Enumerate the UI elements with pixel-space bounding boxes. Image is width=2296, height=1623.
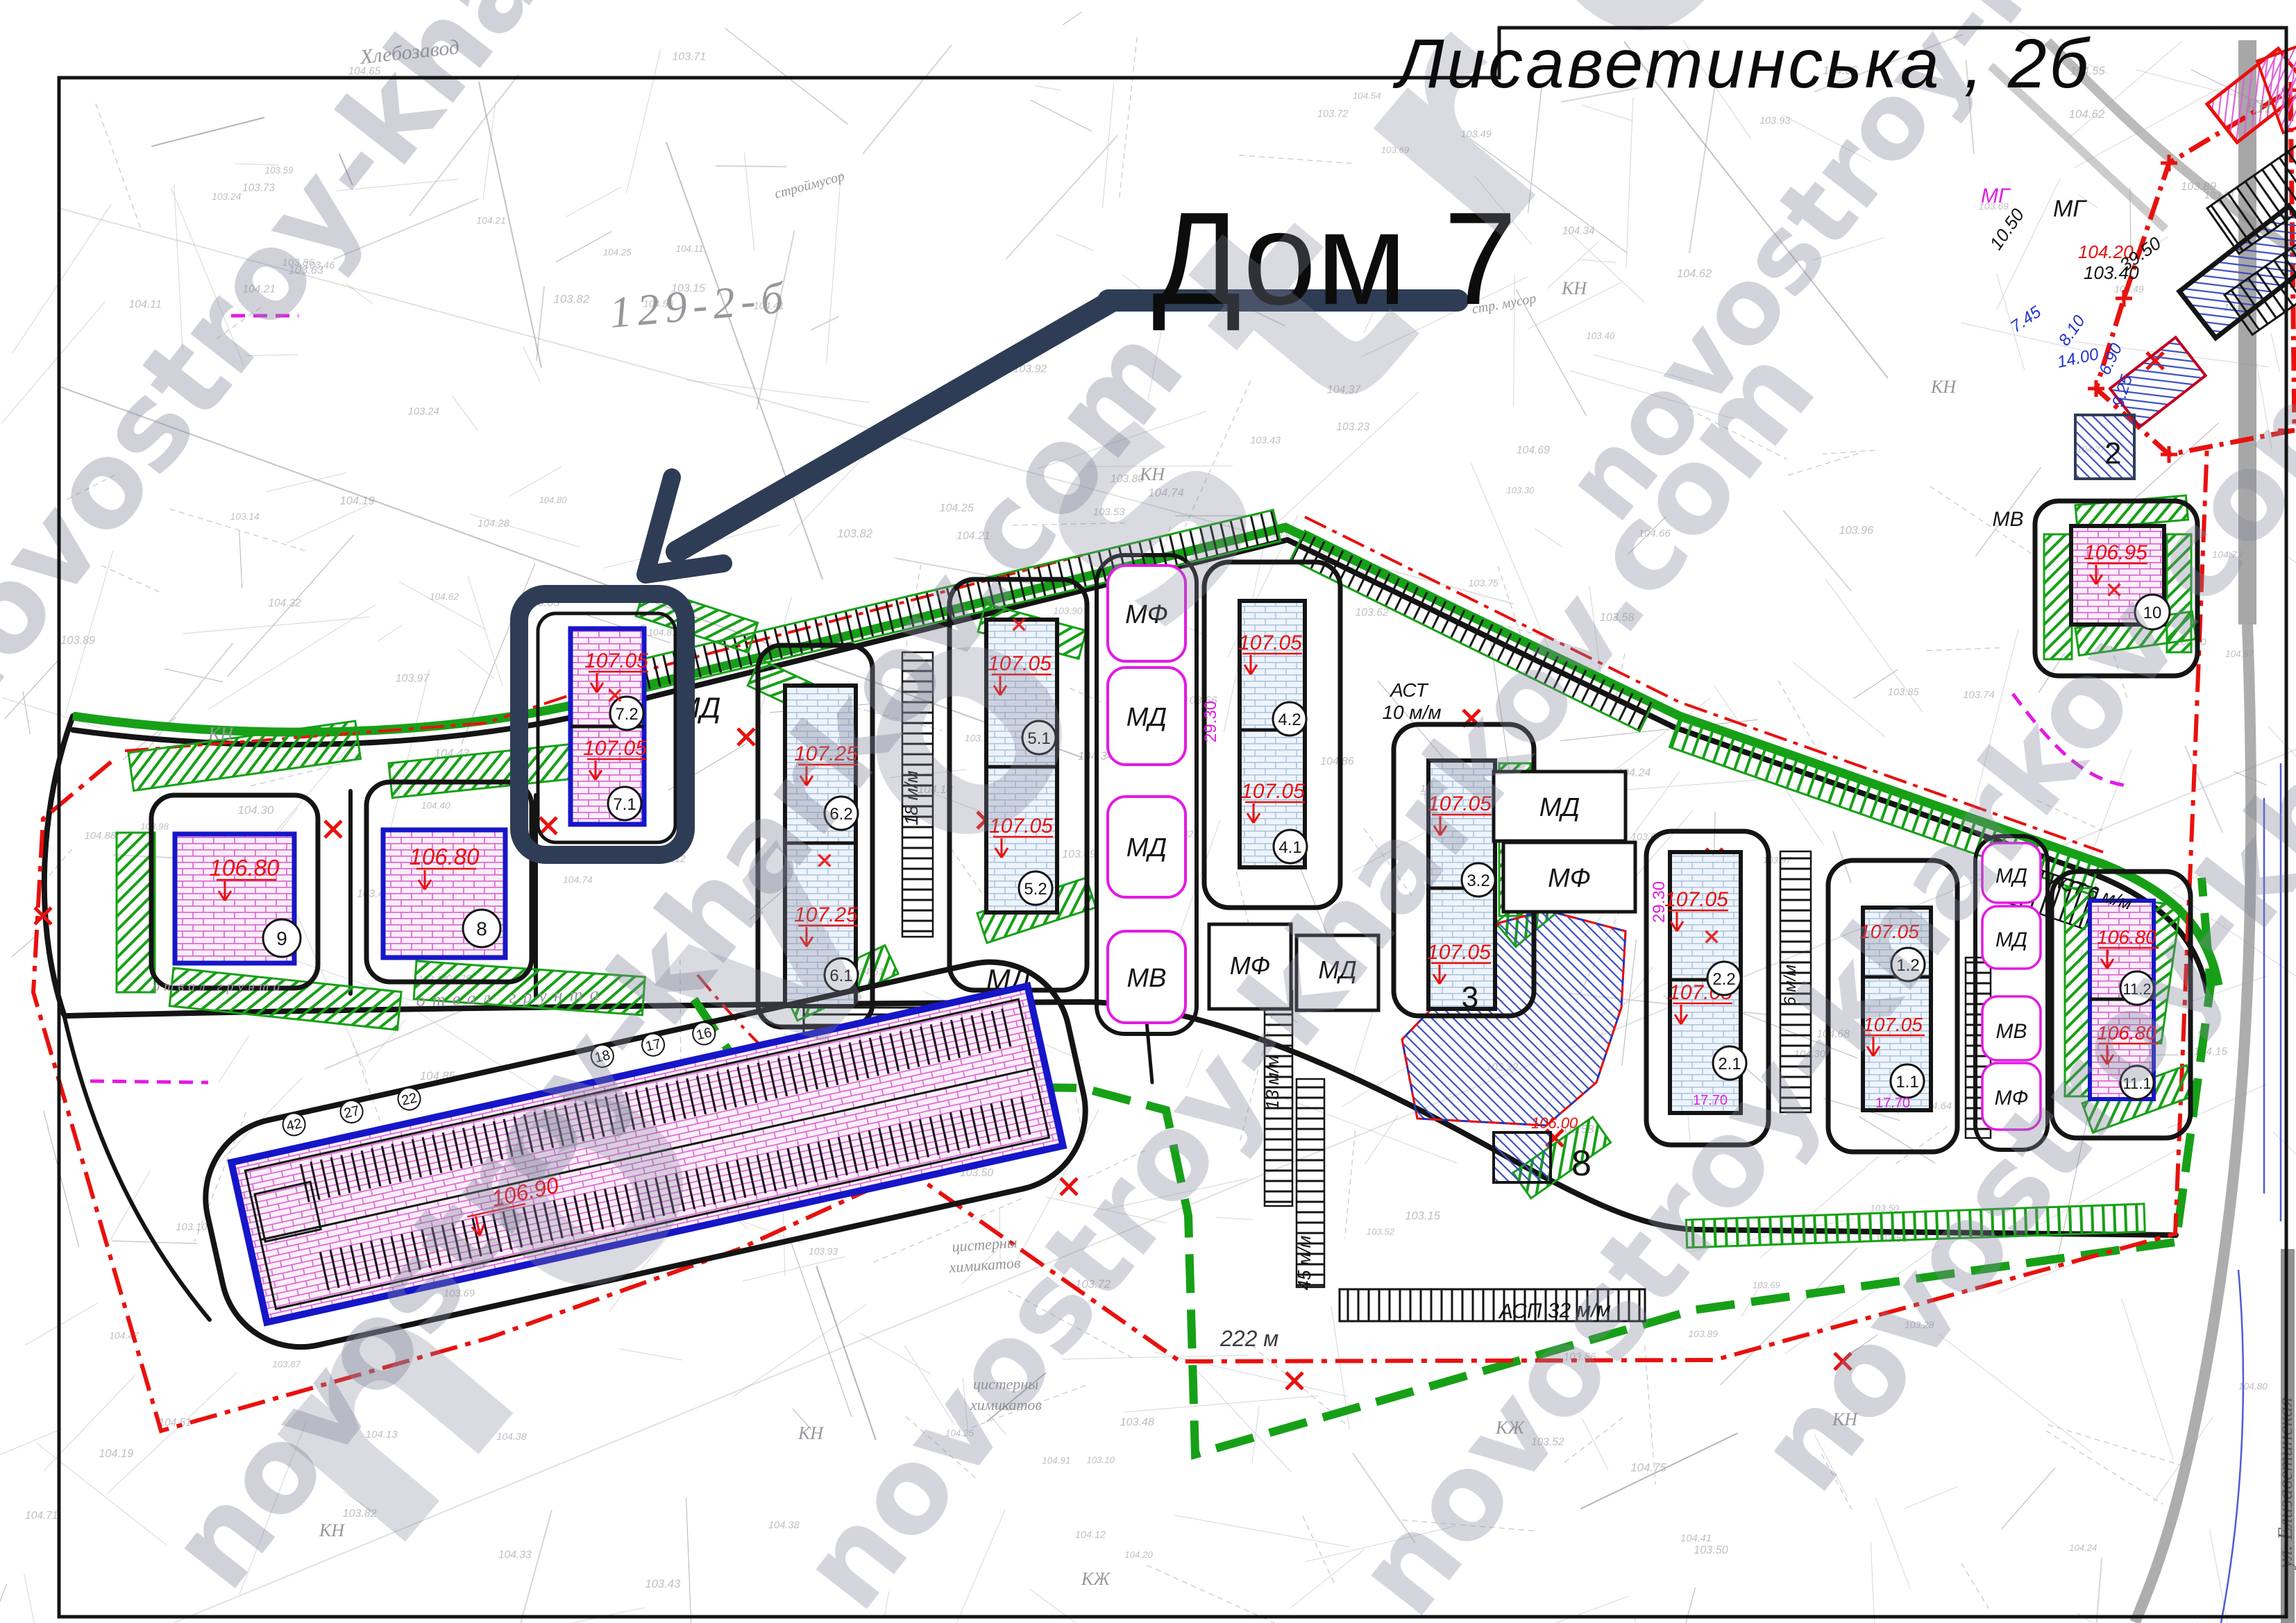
survey-noise bbox=[337, 179, 458, 191]
survey-noise bbox=[164, 669, 223, 682]
dom7-label: Дом 7 bbox=[1152, 185, 1517, 332]
survey-noise: 103.96 bbox=[1839, 525, 1873, 537]
survey-noise: 103.32 bbox=[1165, 829, 1194, 839]
survey-noise: 103.93 bbox=[1759, 115, 1791, 126]
survey-noise: 104.81 bbox=[648, 627, 677, 638]
elevation-label: 107.05 bbox=[1241, 780, 1305, 803]
survey-noise: 103.87 bbox=[272, 1359, 301, 1370]
survey-noise bbox=[1240, 932, 1278, 981]
survey-noise bbox=[1634, 1617, 1662, 1623]
survey-noise bbox=[2002, 1468, 2055, 1529]
survey-noise bbox=[1591, 778, 1783, 792]
survey-noise: 103.83 bbox=[525, 596, 559, 609]
survey-noise: 104.41 bbox=[1680, 1533, 1712, 1545]
survey-noise bbox=[686, 380, 870, 402]
survey-noise: 104.62 bbox=[1677, 267, 1712, 280]
survey-noise bbox=[537, 287, 544, 361]
survey-noise bbox=[2174, 873, 2203, 889]
survey-noise bbox=[1778, 681, 1830, 772]
service-label: МФ bbox=[1548, 864, 1591, 893]
garage-elevation: 106.90 bbox=[489, 1172, 562, 1211]
survey-noise bbox=[1593, 355, 1694, 382]
survey-noise: 104.27 bbox=[2077, 444, 2105, 454]
survey-noise bbox=[171, 187, 244, 366]
magenta-lines bbox=[90, 316, 2125, 1082]
section-number: 3.2 bbox=[1467, 872, 1489, 890]
survey-noise bbox=[2041, 1142, 2191, 1224]
survey-noise bbox=[1087, 1150, 1145, 1178]
label-cisterny: цистерны bbox=[952, 1233, 1018, 1255]
service-label: МД bbox=[1539, 793, 1580, 822]
survey-noise bbox=[1895, 1126, 1947, 1164]
survey-noise bbox=[1364, 298, 1381, 333]
survey-noise: 104.43 bbox=[434, 747, 469, 760]
survey-noise: 103.14 bbox=[418, 974, 447, 985]
survey-noise: 103.86 bbox=[1564, 1351, 1596, 1363]
survey-noise bbox=[652, 1138, 748, 1229]
survey-noise: 104.86 bbox=[1320, 756, 1354, 767]
survey-noise bbox=[1689, 81, 1716, 253]
survey-noise bbox=[428, 879, 481, 891]
survey-noise bbox=[1361, 277, 1528, 357]
survey-noise bbox=[1124, 1396, 1318, 1413]
survey-noise bbox=[101, 566, 162, 593]
survey-noise: 103.72 bbox=[1317, 109, 1349, 120]
survey-noise bbox=[1628, 516, 1666, 554]
service-label: МД bbox=[676, 691, 721, 724]
survey-noise: 103.14 bbox=[230, 511, 260, 522]
survey-noise bbox=[668, 743, 748, 790]
survey-noise bbox=[249, 759, 360, 786]
survey-noise: 104.61 bbox=[852, 966, 884, 978]
survey-noise bbox=[1187, 1049, 1203, 1089]
survey-noise bbox=[1070, 688, 1163, 729]
grid-bubble: 18 bbox=[593, 1048, 611, 1066]
section-number: 4.2 bbox=[1278, 711, 1301, 729]
survey-noise bbox=[733, 1304, 867, 1397]
survey-noise: 104.47 bbox=[109, 1330, 140, 1341]
survey-noise bbox=[716, 166, 787, 167]
label-p13: 13 м/м bbox=[1262, 1055, 1283, 1110]
survey-noise bbox=[1126, 600, 1207, 636]
survey-noise bbox=[123, 717, 176, 760]
survey-noise bbox=[1489, 634, 1517, 826]
section-number: 8 bbox=[476, 918, 487, 940]
survey-noise bbox=[287, 505, 368, 543]
survey-noise bbox=[1681, 1023, 1690, 1141]
survey-noise bbox=[1252, 1405, 1259, 1463]
survey-noise bbox=[507, 1608, 645, 1623]
survey-noise: 104.59 bbox=[1896, 1098, 1927, 1110]
site-plan-sheet: 103.89104.23103.74104.41103.50103.89104.… bbox=[0, 0, 2296, 1623]
survey-noise: 103.24 bbox=[212, 192, 241, 202]
survey-noise: 104.21 bbox=[476, 215, 505, 226]
survey-noise: 103.25 bbox=[275, 1193, 308, 1205]
survey-noise: 103.50 bbox=[1870, 1203, 1899, 1214]
survey-noise: 103.82 bbox=[837, 527, 872, 540]
survey-noise bbox=[1876, 1497, 1911, 1588]
survey-noise: 103.31 bbox=[2204, 190, 2235, 201]
survey-noise: 103.53 bbox=[1093, 507, 1125, 518]
survey-noise: 104.68 bbox=[1816, 1028, 1850, 1040]
survey-noise bbox=[1714, 686, 1824, 845]
survey-noise: 103.85 bbox=[1888, 687, 1920, 698]
label-p45: 45 м/м bbox=[1294, 1235, 1315, 1290]
survey-noise bbox=[1236, 872, 1258, 965]
survey-noise bbox=[1966, 60, 1973, 154]
label-kn: КН bbox=[1832, 1409, 1858, 1429]
survey-noise bbox=[1925, 648, 2000, 651]
survey-noise bbox=[744, 153, 754, 250]
survey-noise bbox=[410, 75, 518, 216]
survey-noise: 104.19 bbox=[2224, 302, 2256, 314]
survey-noise bbox=[938, 1510, 1006, 1623]
survey-noise: 104.20 bbox=[1124, 1549, 1153, 1560]
service-label: МД bbox=[1126, 703, 1167, 732]
survey-noise bbox=[0, 1429, 62, 1501]
survey-noise bbox=[44, 1375, 135, 1470]
survey-noise bbox=[339, 154, 353, 185]
dim-6-90: 6.90 bbox=[2095, 340, 2126, 377]
survey-noise: 103.15 bbox=[1405, 1209, 1441, 1223]
label-ast: АСТ bbox=[1389, 679, 1428, 701]
sheet-frame bbox=[59, 28, 2286, 1617]
survey-noise: 103.50 bbox=[1694, 1544, 1728, 1556]
building-2: 107.05 107.05 2.2 2.1 17.70 29.30 bbox=[1646, 831, 1769, 1145]
building-7: 107.05 107.05 7.2 7.1 bbox=[538, 613, 675, 842]
survey-noise bbox=[1470, 139, 1627, 253]
survey-noise: 104.87 bbox=[1154, 984, 1183, 994]
survey-noise: 103.90 bbox=[1054, 606, 1083, 616]
section-number: 2.1 bbox=[1718, 1055, 1741, 1073]
survey-noise bbox=[2094, 1557, 2102, 1623]
survey-noise bbox=[626, 49, 660, 193]
survey-noise bbox=[2290, 48, 2296, 76]
survey-noise bbox=[1244, 1339, 1345, 1424]
survey-noise bbox=[566, 187, 621, 216]
survey-noise bbox=[884, 1591, 888, 1617]
survey-noise bbox=[1195, 1369, 1291, 1472]
building-5: 107.05 107.05 5.1 5.2 bbox=[949, 579, 1087, 990]
section-number: 3 bbox=[1462, 980, 1478, 1014]
survey-noise bbox=[2273, 1132, 2296, 1272]
survey-noise bbox=[1689, 409, 1787, 459]
survey-noise bbox=[1139, 526, 1170, 634]
garage-grid-bubbles: 42 27 22 18 17 16 bbox=[280, 1020, 717, 1137]
survey-noise bbox=[1570, 371, 1734, 418]
survey-noise bbox=[1626, 97, 1633, 269]
survey-noise bbox=[1433, 607, 1557, 640]
survey-noise: 103.15 bbox=[671, 282, 705, 294]
survey-background-texture: 103.89104.23103.74104.41103.50103.89104.… bbox=[0, 12, 2296, 1623]
survey-noise: 103.30 bbox=[1506, 485, 1535, 495]
survey-noise: 103.43 bbox=[645, 1577, 680, 1590]
survey-noise bbox=[1938, 1334, 2092, 1453]
survey-noise: 104.25 bbox=[940, 502, 974, 514]
survey-noise: 104.12 bbox=[1075, 1529, 1106, 1540]
survey-noise bbox=[1076, 1098, 1084, 1145]
survey-noise bbox=[1402, 1520, 1536, 1531]
watermark-layer: novostroy-kharkov.com novostroy-kharkov.… bbox=[0, 0, 2296, 1623]
survey-noise bbox=[1046, 1197, 1166, 1223]
dim-9-25: 9.25 bbox=[2109, 372, 2136, 409]
survey-noise bbox=[1998, 1243, 2127, 1293]
label-ast-count: 10 м/м bbox=[1382, 702, 1441, 723]
survey-noise bbox=[108, 1171, 150, 1243]
survey-noise: 104.34 bbox=[1562, 225, 1595, 237]
survey-noise: 104.74 bbox=[1148, 486, 1184, 499]
survey-noise bbox=[2210, 1529, 2236, 1623]
survey-noise bbox=[1148, 251, 1176, 400]
survey-noise: 104.37 bbox=[1327, 384, 1362, 396]
survey-noise bbox=[1689, 1218, 1855, 1252]
watermark-text: novostroy-kharkov.com bbox=[1330, 329, 2296, 1623]
survey-noise bbox=[1579, 260, 1616, 262]
survey-noise bbox=[399, 581, 486, 629]
label-kn: КН bbox=[1139, 464, 1165, 484]
survey-noise bbox=[26, 1303, 99, 1345]
survey-noise bbox=[1122, 274, 1167, 309]
survey-noise bbox=[2075, 341, 2268, 366]
survey-noise: 103.52 bbox=[1531, 1436, 1564, 1448]
survey-noise: 103.82 bbox=[343, 1508, 377, 1520]
survey-noise: 104.53 bbox=[940, 388, 970, 399]
survey-noise bbox=[961, 1248, 999, 1284]
label-kn: КН bbox=[2245, 96, 2272, 117]
elevation-label: 107.05 bbox=[1664, 888, 1728, 911]
survey-noise: 104.21 bbox=[242, 284, 276, 296]
survey-noise: 104.64 bbox=[1921, 1101, 1952, 1112]
section-number: 6.2 bbox=[829, 805, 852, 824]
survey-noise: 104.62 bbox=[2069, 108, 2105, 121]
survey-noise: 104.19 bbox=[99, 1447, 133, 1460]
survey-noise bbox=[2130, 187, 2131, 249]
survey-noise bbox=[1712, 812, 1715, 946]
survey-noise: 104.66 bbox=[1639, 528, 1671, 540]
service-label: МВ bbox=[1127, 964, 1167, 993]
watermark-text: novostroy-kharkov.com bbox=[0, 0, 940, 753]
survey-noise bbox=[782, 1157, 785, 1276]
survey-noise bbox=[2191, 69, 2263, 105]
survey-noise bbox=[872, 1198, 1022, 1263]
label-otval-1: отвал грунта bbox=[416, 983, 606, 1010]
substation-elevation: 106.00 bbox=[1531, 1114, 1578, 1132]
label-222m: 222 м bbox=[1219, 1326, 1278, 1351]
survey-noise: 103.68 bbox=[1420, 783, 1451, 794]
survey-noise: 104.97 bbox=[2225, 649, 2254, 659]
elevation-label: 107.05 bbox=[1859, 921, 1919, 942]
survey-noise bbox=[1120, 37, 1137, 198]
survey-noise: 104.60 bbox=[1680, 876, 1712, 887]
survey-noise bbox=[1823, 450, 1875, 454]
survey-noise bbox=[245, 733, 360, 867]
survey-noise bbox=[1821, 1454, 1852, 1510]
callout-arrowhead bbox=[645, 477, 723, 575]
survey-noise: 103.10 bbox=[1086, 1455, 1115, 1465]
survey-noise: 103.82 bbox=[553, 293, 589, 306]
survey-noise bbox=[789, 434, 885, 536]
survey-noise bbox=[1012, 523, 1125, 525]
label-asp2: АСП 32 м/м bbox=[1498, 1298, 1612, 1323]
label-asp-count: 26 м/м bbox=[827, 1048, 900, 1074]
dim-7-45: 7.45 bbox=[2007, 303, 2045, 337]
survey-noise bbox=[12, 204, 111, 352]
survey-noise bbox=[643, 1072, 676, 1117]
survey-noise bbox=[1741, 1282, 1762, 1317]
survey-noise: 104.18 bbox=[918, 783, 953, 796]
survey-noise bbox=[12, 937, 34, 957]
survey-noise: 104.11 bbox=[128, 299, 161, 311]
survey-noise bbox=[208, 604, 375, 709]
label-kn: КН bbox=[797, 1423, 824, 1443]
survey-noise bbox=[353, 1042, 398, 1171]
survey-noise bbox=[963, 1377, 968, 1429]
section-number: 5.1 bbox=[1027, 729, 1050, 748]
survey-noise bbox=[4, 660, 58, 720]
buildings-layer: 106.80 9 106.80 8 107.05 107.05 7.2 bbox=[151, 501, 2197, 1152]
survey-noise bbox=[603, 525, 779, 568]
survey-noise bbox=[1215, 1217, 1253, 1219]
survey-noise bbox=[1471, 464, 1549, 649]
survey-noise bbox=[2038, 653, 2065, 693]
survey-noise bbox=[1582, 1418, 1608, 1470]
survey-noise bbox=[1961, 1563, 1989, 1609]
survey-noise bbox=[609, 604, 700, 638]
survey-noise: 104.26 bbox=[441, 974, 472, 985]
survey-noise: 103.52 bbox=[1367, 1226, 1395, 1237]
survey-noise bbox=[1147, 1565, 1278, 1623]
survey-noise: 103.67 bbox=[1631, 832, 1662, 843]
survey-noise bbox=[468, 575, 503, 686]
survey-noise bbox=[1240, 985, 1280, 1143]
survey-noise bbox=[1566, 229, 1645, 303]
survey-noise: 103.63 bbox=[1350, 564, 1380, 575]
survey-noise: 104.32 bbox=[269, 597, 302, 609]
survey-noise bbox=[2066, 41, 2182, 140]
survey-noise bbox=[2234, 772, 2266, 785]
survey-noise bbox=[2268, 727, 2296, 761]
survey-noise: 103.24 bbox=[408, 406, 439, 417]
survey-noise: 104.55 bbox=[2070, 65, 2106, 77]
survey-noise: 104.21 bbox=[956, 530, 990, 542]
grid-bubble: 27 bbox=[343, 1103, 361, 1121]
survey-noise bbox=[793, 1409, 811, 1429]
survey-noise bbox=[817, 697, 942, 730]
survey-noise: 103.86 bbox=[282, 257, 314, 269]
survey-noise: 103.74 bbox=[1963, 690, 1995, 701]
survey-noise bbox=[2185, 746, 2222, 833]
dim-29-30: 29.30 bbox=[1650, 881, 1669, 923]
survey-noise bbox=[987, 1373, 1046, 1422]
survey-noise bbox=[970, 1385, 1086, 1427]
survey-noise bbox=[1970, 859, 2023, 878]
survey-noise bbox=[1102, 83, 1113, 208]
service-label: МД bbox=[1995, 865, 2027, 887]
survey-noise: 103.49 bbox=[1460, 129, 1491, 140]
survey-noise bbox=[1514, 275, 1514, 407]
callout-diagonal bbox=[677, 302, 1111, 552]
survey-noise bbox=[203, 1078, 303, 1179]
elevation-label: 107.25 bbox=[794, 903, 858, 926]
survey-noise: 104.25 bbox=[603, 247, 632, 257]
survey-noise: 103.71 bbox=[672, 51, 706, 62]
survey-noise: 103.98 bbox=[140, 822, 169, 832]
survey-noise bbox=[401, 1001, 550, 1097]
survey-noise bbox=[333, 198, 479, 259]
label-ast6: АСТ 6 м/м bbox=[2046, 869, 2134, 914]
survey-noise bbox=[144, 643, 233, 754]
survey-noise bbox=[96, 103, 142, 231]
label-hlebozavod: Хлебозавод bbox=[358, 35, 460, 69]
survey-noise: 104.80 bbox=[2238, 1382, 2268, 1392]
survey-noise bbox=[1551, 1075, 1575, 1087]
survey-noise: 104.61 bbox=[456, 1193, 484, 1204]
survey-noise bbox=[757, 230, 794, 409]
survey-noise: 104.69 bbox=[1517, 444, 1550, 456]
survey-noise bbox=[1814, 35, 1963, 92]
survey-noise: 103.43 bbox=[1250, 435, 1281, 446]
survey-noise bbox=[228, 535, 354, 677]
survey-noise bbox=[1721, 1248, 1857, 1385]
survey-noise: 103.69 bbox=[1979, 201, 2009, 212]
road-south bbox=[66, 1002, 2176, 1235]
survey-noise: 103.46 bbox=[304, 260, 335, 271]
elevation-label: 107.05 bbox=[988, 652, 1052, 675]
watermark-text: novostroy-kharkov.com bbox=[1732, 205, 2296, 1516]
survey-noise bbox=[1378, 681, 1451, 767]
survey-noise bbox=[1179, 820, 1220, 935]
elev-103-40: 103.40 bbox=[2084, 262, 2139, 283]
survey-noise bbox=[2136, 69, 2296, 116]
survey-noise: 103.93 bbox=[809, 1246, 838, 1257]
survey-noise bbox=[458, 649, 494, 679]
survey-noise: 104.74 bbox=[563, 874, 593, 885]
survey-noise bbox=[895, 1039, 998, 1046]
survey-noise bbox=[2127, 423, 2218, 506]
red-boundaries bbox=[33, 444, 2207, 1431]
survey-noise bbox=[1528, 282, 1621, 329]
elevation-label: 106.95 bbox=[2084, 541, 2147, 564]
survey-noise: 103.56 bbox=[1875, 1233, 1908, 1245]
survey-noise bbox=[1030, 1589, 1130, 1623]
survey-noise bbox=[587, 615, 670, 643]
survey-noise bbox=[951, 849, 999, 919]
elevation-label: 107.05 bbox=[584, 649, 648, 672]
survey-noise bbox=[2079, 1012, 2092, 1067]
survey-noise bbox=[1285, 1098, 1457, 1163]
grid-bubble: 22 bbox=[400, 1090, 419, 1108]
survey-noise bbox=[151, 117, 264, 146]
survey-noise: 104.30 bbox=[1794, 1048, 1826, 1060]
survey-noise: 103.26 bbox=[832, 1130, 866, 1141]
survey-noise bbox=[1930, 486, 2032, 554]
parking-labels: АСП 26 м/м АСТ 10 м/м АСП 32 м/м 18 м/м … bbox=[827, 679, 2134, 1351]
survey-noise: 104.65 bbox=[1823, 65, 1858, 77]
survey-noise: 104.38 bbox=[768, 1520, 800, 1531]
survey-noise bbox=[2077, 1613, 2161, 1623]
elevation-label: 107.05 bbox=[1427, 941, 1491, 964]
road-north bbox=[73, 540, 2207, 992]
survey-noise: 103.13 bbox=[477, 1249, 506, 1259]
survey-noise bbox=[107, 1373, 237, 1494]
dim-39-50: 39.50 bbox=[2116, 232, 2165, 275]
dim-label: 17.70 bbox=[1693, 1093, 1728, 1108]
survey-noise bbox=[483, 101, 496, 199]
survey-noise: 104.24 bbox=[2069, 1543, 2097, 1553]
service-label: МД bbox=[1318, 955, 1356, 984]
survey-noise bbox=[235, 164, 279, 165]
survey-noise bbox=[1303, 1516, 1336, 1587]
